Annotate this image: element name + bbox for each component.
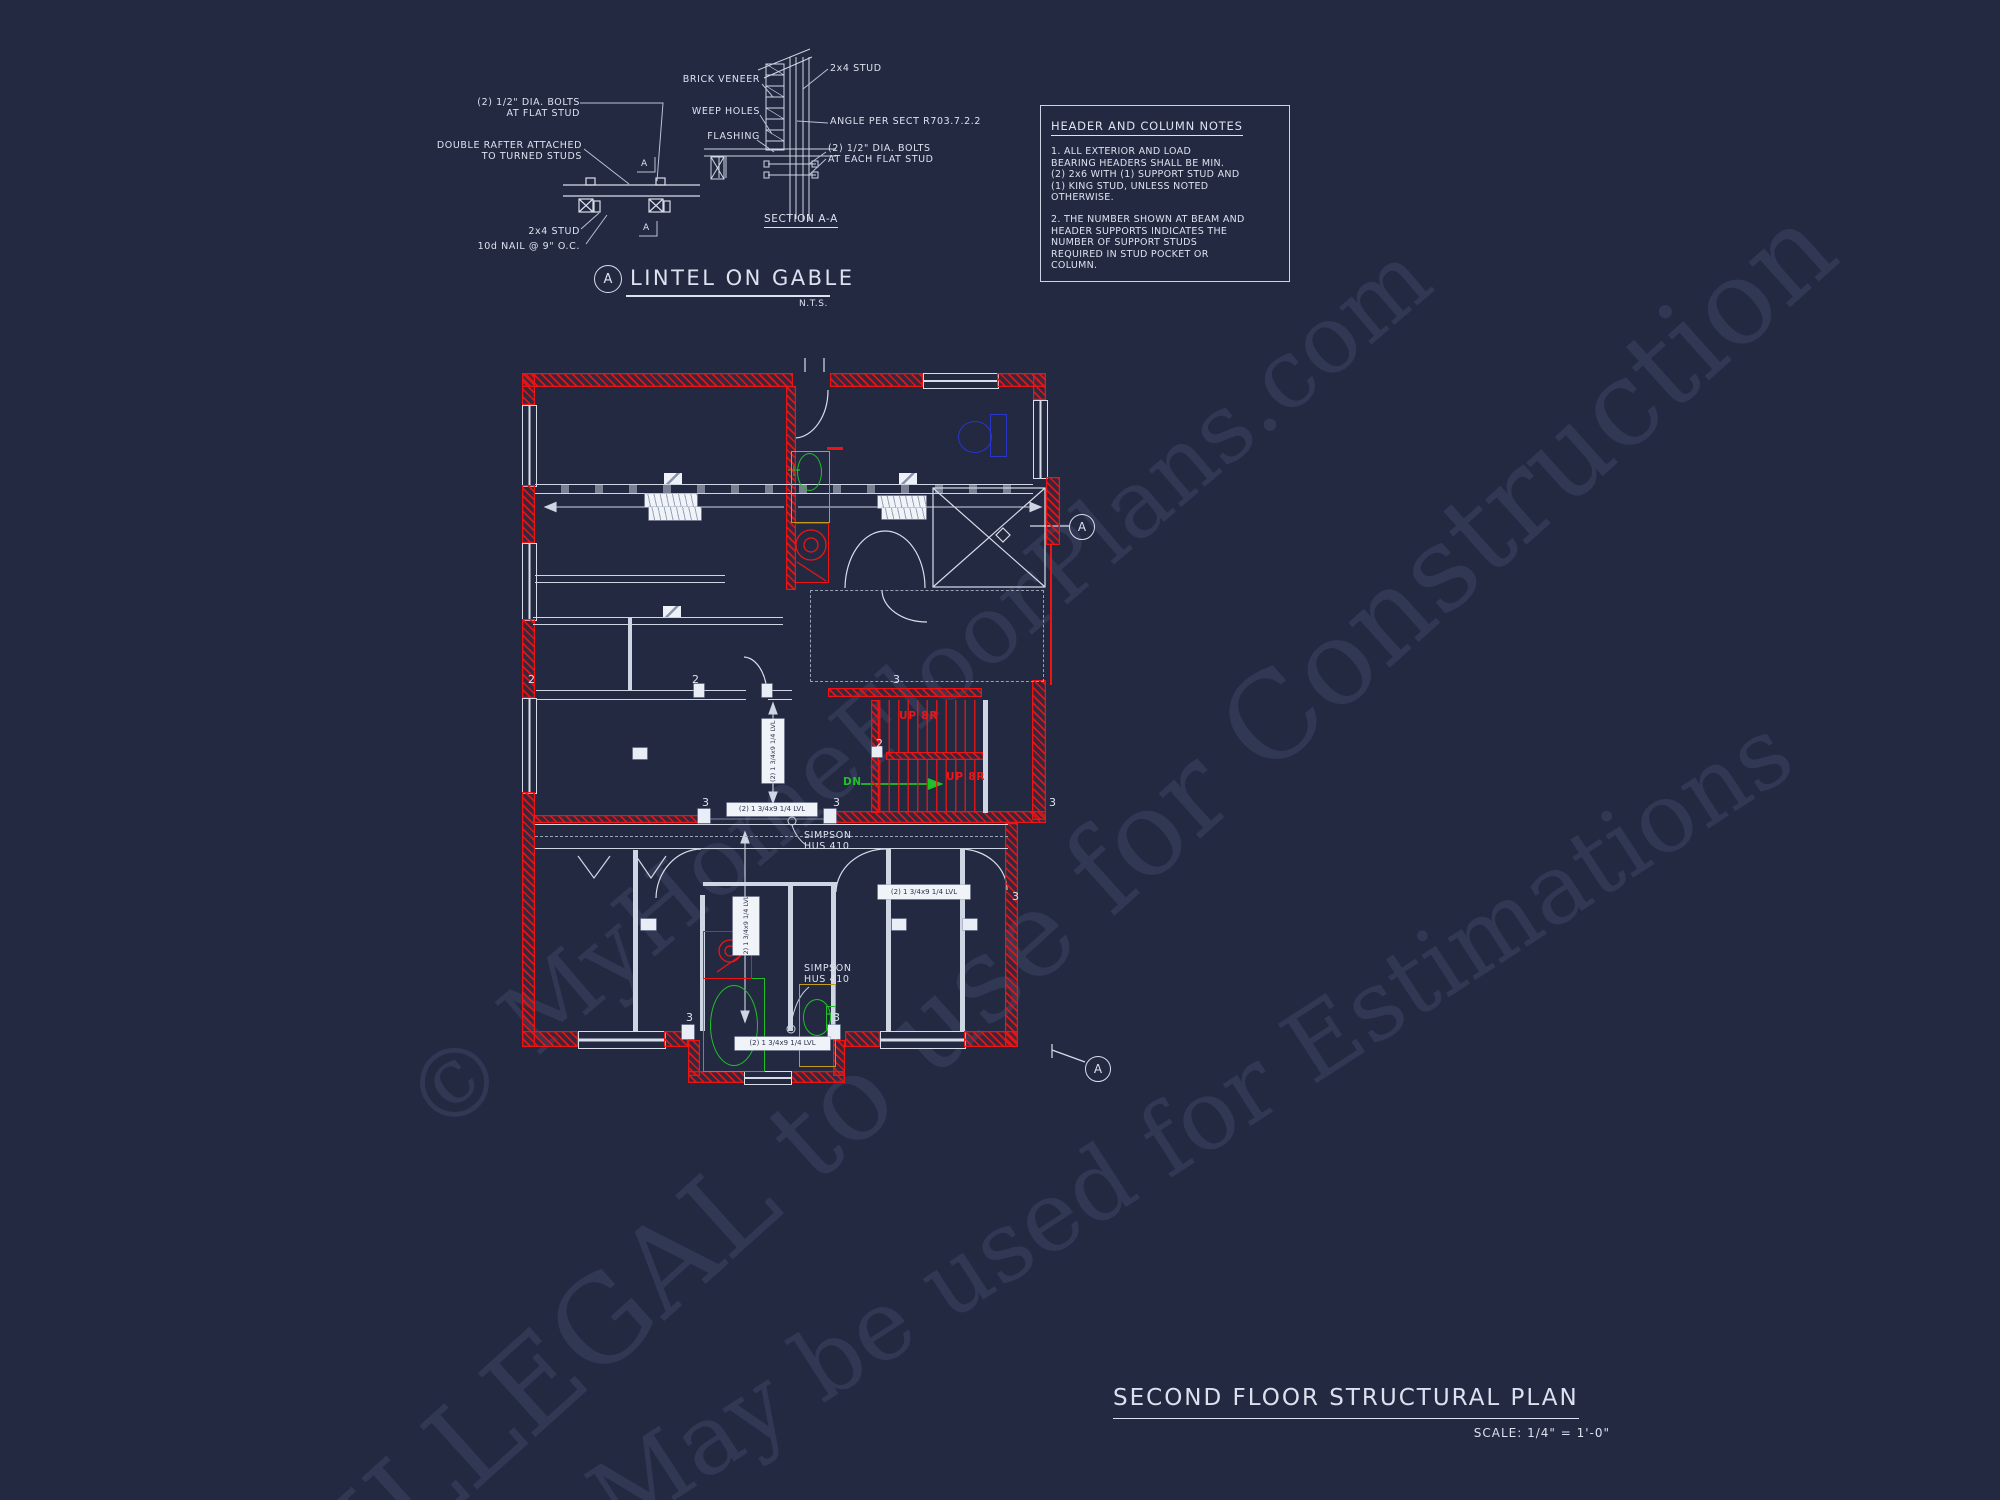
blueprint-canvas: © MyHomeFloorPlans.com ILLEGAL to use fo… [0, 0, 2000, 1500]
wall-top-2 [830, 373, 923, 387]
wall-left-1 [522, 373, 535, 405]
label-bolts-each-flat-stud: (2) 1/2" DIA. BOLTS AT EACH FLAT STUD [828, 143, 934, 165]
stud-count-marker: 3 [893, 673, 900, 686]
stud-post [682, 1025, 694, 1039]
lintel-beam-lines [563, 178, 700, 212]
label-double-rafter: DOUBLE RAFTER ATTACHED TO TURNED STUDS [432, 140, 582, 162]
header-column-notes: HEADER AND COLUMN NOTES 1. ALL EXTERIOR … [1040, 105, 1290, 282]
notes-title: HEADER AND COLUMN NOTES [1051, 119, 1243, 136]
label-2x4-stud-right: 2x4 STUD [830, 63, 882, 74]
stud-count-marker: 2 [876, 737, 883, 750]
tub-icon [710, 985, 758, 1066]
window-left-3 [522, 698, 537, 794]
stud-post [824, 809, 836, 823]
wall-int-v5 [886, 848, 891, 1031]
window-bottom-left [578, 1031, 666, 1049]
wall-int-v1 [633, 850, 638, 1031]
joist-callout-box [878, 496, 926, 508]
section-aa-title: SECTION A-A [764, 213, 838, 228]
notes-paragraph-1: 1. ALL EXTERIOR AND LOAD BEARING HEADERS… [1051, 146, 1279, 204]
window-top [923, 373, 999, 389]
wall-top-1 [522, 373, 793, 387]
wall-stair-top [828, 688, 982, 697]
header-tag-box [663, 606, 681, 617]
wall-int-v3 [788, 884, 793, 1031]
wall-right-2 [1032, 680, 1046, 820]
wall-int-h1 [535, 575, 725, 583]
window-left-1 [522, 405, 537, 487]
stud-post [641, 919, 656, 930]
label-2x4-stud-left: 2x4 STUD [495, 226, 580, 237]
toilet-top-icon [797, 453, 822, 491]
section-flag-a-top: A [641, 159, 648, 169]
joist-callout-box [645, 494, 697, 507]
label-angle-per-sect: ANGLE PER SECT R703.7.2.2 [830, 116, 981, 127]
stud-post [892, 919, 906, 930]
joist-callout-box [649, 507, 701, 520]
beam-label: (2) 1 3/4x9 1/4 LVL [878, 885, 970, 899]
stair-up-label-2: UP 8R [946, 771, 985, 783]
section-flag-a-bottom: A [643, 223, 650, 233]
detail-bubble-letter: A [604, 272, 613, 287]
sheet-scale: SCALE: 1/4" = 1'-0" [1330, 1426, 1610, 1440]
detail-title: LINTEL ON GABLE [630, 266, 855, 290]
wall-left-4 [522, 792, 535, 1047]
wall-left-2 [522, 485, 535, 543]
stair-dn-label: DN [843, 776, 862, 788]
wall-stair-right [983, 700, 988, 813]
wall-bottom-4 [964, 1031, 1018, 1047]
stud-post [633, 748, 647, 759]
wall-int-v7 [628, 617, 632, 690]
wall-int-long-dash [535, 836, 1008, 838]
section-marker-mid: A [1069, 514, 1095, 540]
stud-count-marker: 3 [702, 796, 709, 809]
beam-label: (2) 1 3/4x9 1/4 LVL [727, 803, 817, 816]
header-tag-box [899, 473, 917, 484]
stud-count-marker: 2 [528, 673, 535, 686]
wall-int-h2 [533, 617, 783, 625]
label-10d-nail: 10d NAIL @ 9" O.C. [475, 241, 580, 252]
label-flashing: FLASHING [690, 131, 760, 142]
wall-stair-half [886, 752, 984, 760]
beam-label-vertical: (2) 1 3/4x9 1/4 LVL [733, 897, 759, 955]
detail-scale-note: N.T.S. [740, 299, 828, 309]
section-marker-bottom: A [1085, 1056, 1111, 1082]
wall-right-thin [1050, 545, 1052, 685]
joist-callout-box [882, 508, 926, 519]
bath-pipe-line [827, 447, 843, 450]
stud-count-marker: 3 [686, 1011, 693, 1024]
notes-paragraph-2: 2. THE NUMBER SHOWN AT BEAM AND HEADER S… [1051, 214, 1279, 272]
stud-post [698, 809, 710, 823]
wall-int-h4 [703, 882, 837, 886]
sheet-title: SECOND FLOOR STRUCTURAL PLAN [1113, 1385, 1579, 1419]
window-right [1033, 400, 1048, 479]
stair-run-upper [879, 700, 983, 752]
lintel-leader-lines [580, 103, 663, 244]
vanity-top [795, 523, 829, 583]
stud-count-marker: 3 [1012, 890, 1019, 903]
wall-left-3 [522, 619, 535, 698]
label-brick-veneer: BRICK VENEER [665, 74, 760, 85]
wall-right-1 [1033, 373, 1046, 400]
wall-shower-bump [1046, 477, 1060, 545]
section-marker-mid-letter: A [1078, 520, 1086, 534]
section-aa-leaders [757, 69, 828, 175]
stud-count-marker: 3 [833, 1011, 840, 1024]
stair-run-lower [879, 760, 983, 813]
wall-mid-red-left [533, 815, 703, 823]
wall-int-h3a [536, 690, 746, 700]
label-bolts-at-flat-stud: (2) 1/2" DIA. BOLTS AT FLAT STUD [455, 97, 580, 119]
detail-title-underline [626, 295, 830, 297]
wall-int-v6 [960, 848, 965, 1031]
header-tag-box [664, 473, 682, 484]
stair-up-label-1: UP 8R [899, 710, 938, 722]
stud-post [963, 919, 977, 930]
closet-dashed-outline [810, 590, 1044, 682]
toilet-blue-bowl-icon [958, 421, 992, 453]
stud-post [762, 684, 772, 697]
toilet-blue-tank-icon [990, 414, 1007, 457]
simpson-hanger-label-1: SIMPSON HUS 410 [804, 831, 852, 852]
detail-bubble: A [594, 265, 622, 293]
wall-bottom-1 [522, 1031, 578, 1047]
window-bay [744, 1071, 792, 1085]
wall-right-3 [1005, 823, 1018, 1047]
simpson-hanger-label-2: SIMPSON HUS 410 [804, 964, 852, 985]
stud-count-marker: 3 [833, 796, 840, 809]
stud-count-marker: 3 [1049, 796, 1056, 809]
section-marker-bottom-letter: A [1094, 1062, 1102, 1076]
beam-label: (2) 1 3/4x9 1/4 LVL [735, 1037, 830, 1050]
wall-bottom-3 [845, 1031, 880, 1047]
label-weep-holes: WEEP HOLES [675, 106, 760, 117]
stud-count-marker: 2 [692, 673, 699, 686]
beam-label-vertical: (2) 1 3/4x9 1/4 LVL [762, 719, 784, 783]
bearing-wall [535, 484, 1033, 494]
window-bottom-right [880, 1031, 966, 1049]
